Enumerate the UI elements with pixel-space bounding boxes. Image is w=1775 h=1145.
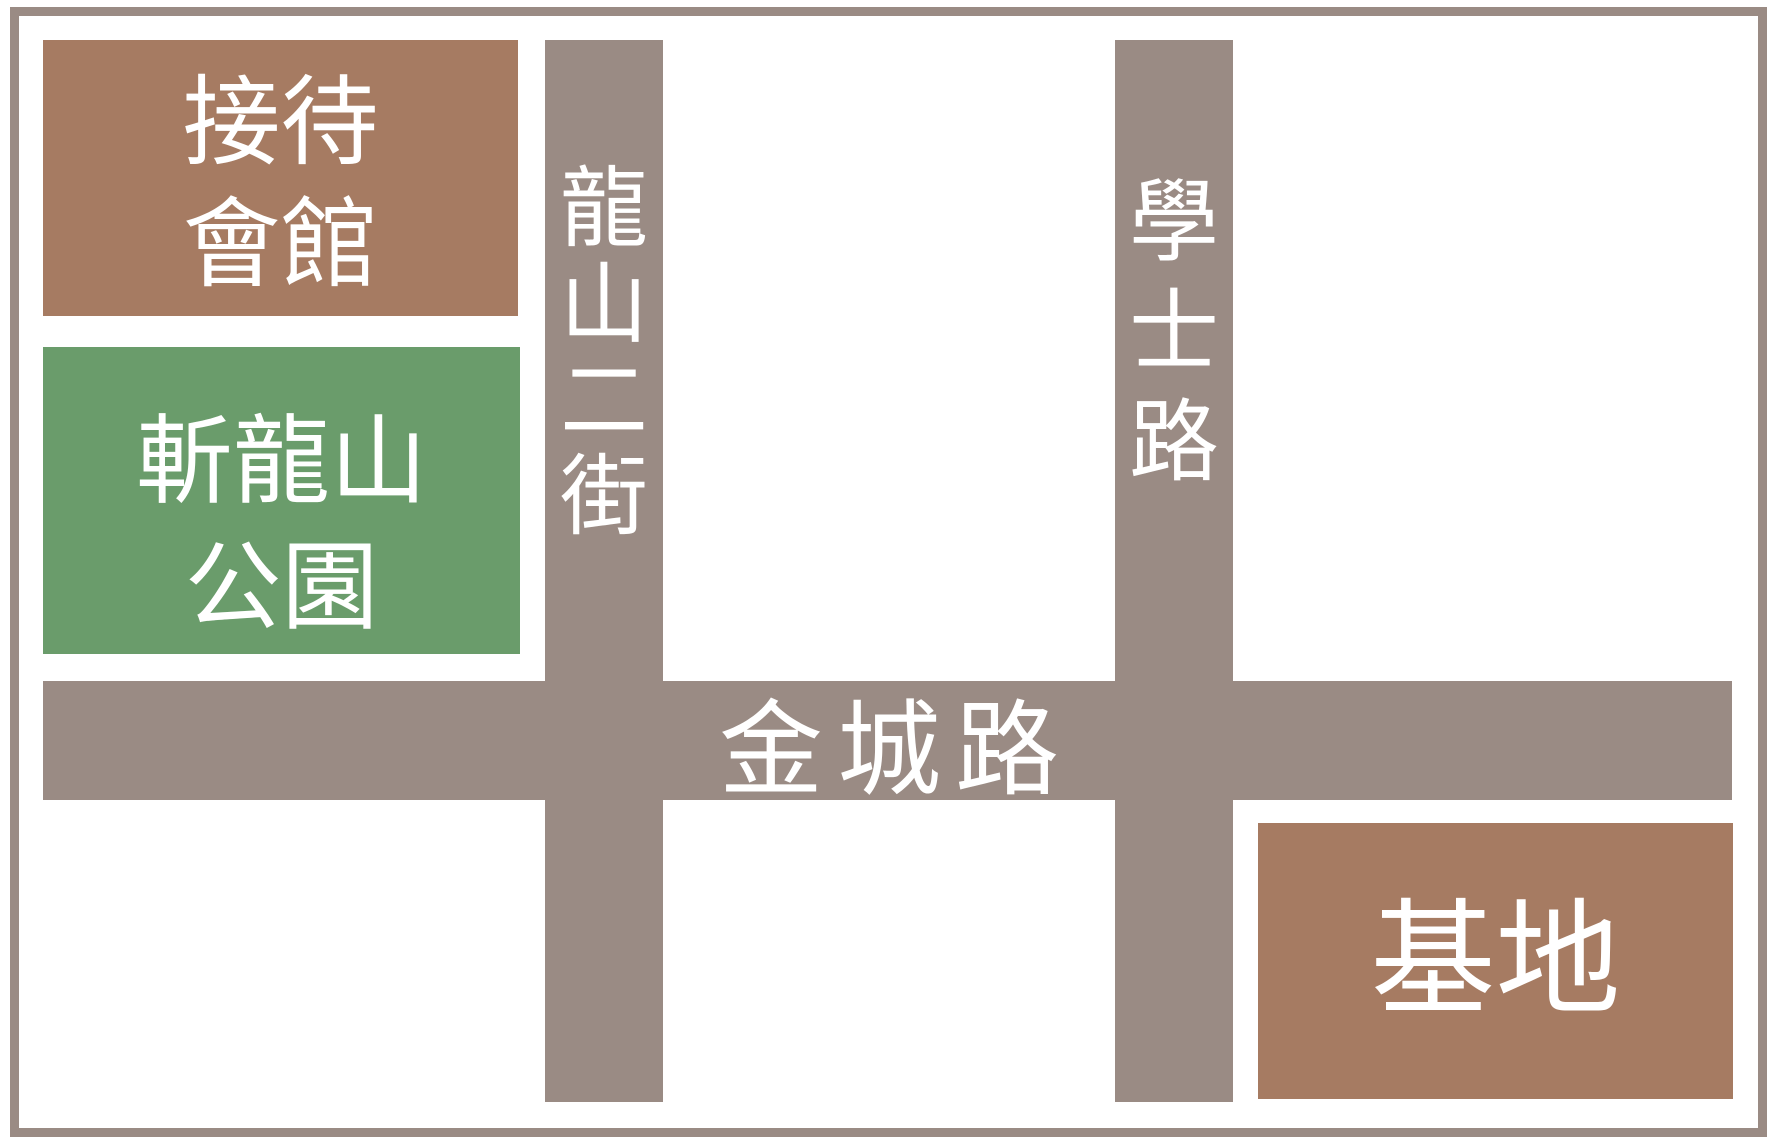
park-zhanlongshan-label-line2: 公園 [185, 525, 379, 651]
road-longshan-2nd-street: 龍山二街 [545, 40, 663, 1102]
building-reception-hall: 接待 會館 [43, 40, 518, 316]
road-xueshi-road: 學士路 [1115, 40, 1233, 1102]
road-label-longshan-2nd-street: 龍山二街 [545, 165, 663, 541]
road-jincheng-road: 金城路 [43, 681, 1732, 800]
park-zhanlongshan: 斬龍山 公園 [43, 347, 520, 654]
building-reception-hall-label-line2: 會館 [182, 184, 378, 306]
road-label-jincheng-road: 金城路 [663, 681, 1115, 800]
building-site-base: 基地 [1258, 823, 1733, 1099]
building-reception-hall-label-line1: 接待 [182, 62, 378, 184]
building-site-base-label: 基地 [1371, 896, 1621, 1026]
park-zhanlongshan-label-line1: 斬龍山 [136, 399, 427, 525]
road-label-xueshi-road: 學士路 [1115, 178, 1233, 488]
site-location-map: 龍山二街 學士路 金城路 接待 會館 斬龍山 公園 基地 [0, 0, 1775, 1145]
